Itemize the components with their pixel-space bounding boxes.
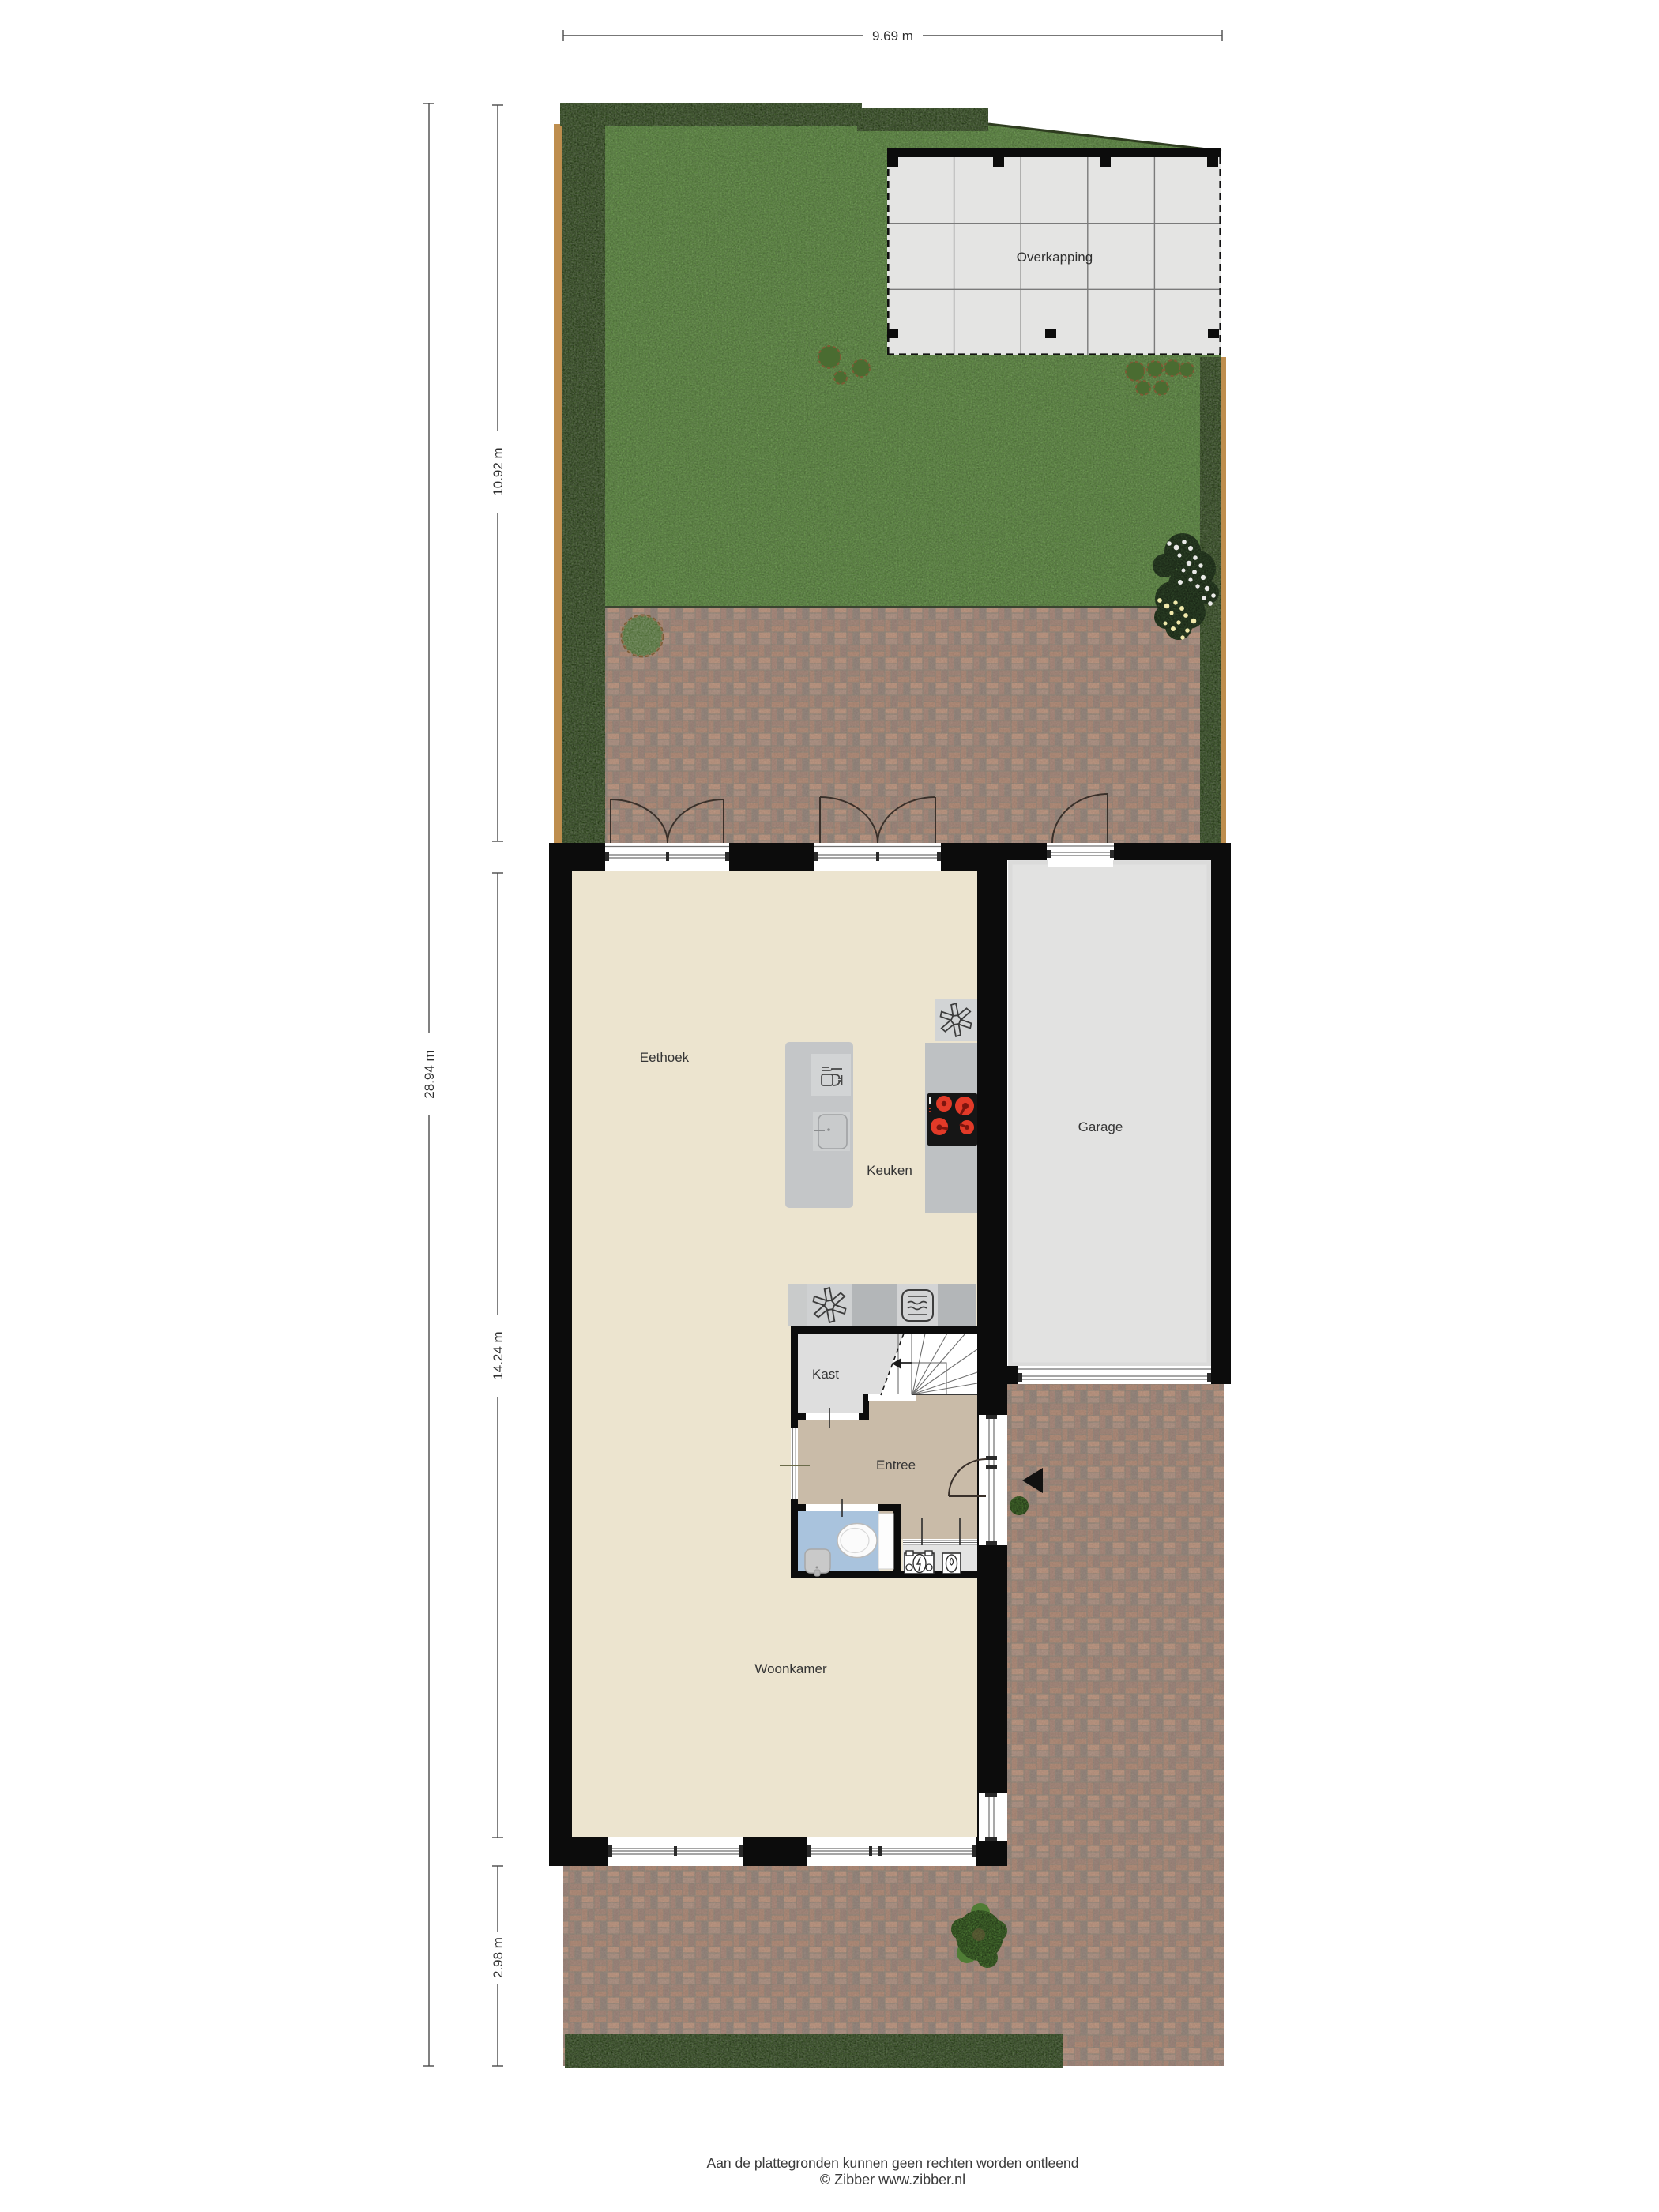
svg-text:Garage: Garage <box>1078 1119 1123 1134</box>
svg-text:14.24 m: 14.24 m <box>491 1331 506 1379</box>
svg-text:Woonkamer: Woonkamer <box>754 1661 827 1676</box>
svg-text:Kast: Kast <box>812 1367 839 1382</box>
svg-text:10.92 m: 10.92 m <box>491 447 506 495</box>
svg-text:© Zibber www.zibber.nl: © Zibber www.zibber.nl <box>820 2172 965 2188</box>
svg-text:Overkapping: Overkapping <box>1017 250 1093 265</box>
svg-text:Keuken: Keuken <box>867 1163 912 1178</box>
svg-text:9.69 m: 9.69 m <box>872 28 913 43</box>
svg-text:Eethoek: Eethoek <box>640 1050 690 1065</box>
svg-text:Aan de plattegronden kunnen ge: Aan de plattegronden kunnen geen rechten… <box>707 2155 1079 2171</box>
svg-text:2.98 m: 2.98 m <box>491 1937 506 1978</box>
svg-text:Entree: Entree <box>876 1458 916 1473</box>
svg-text:28.94 m: 28.94 m <box>422 1050 437 1098</box>
